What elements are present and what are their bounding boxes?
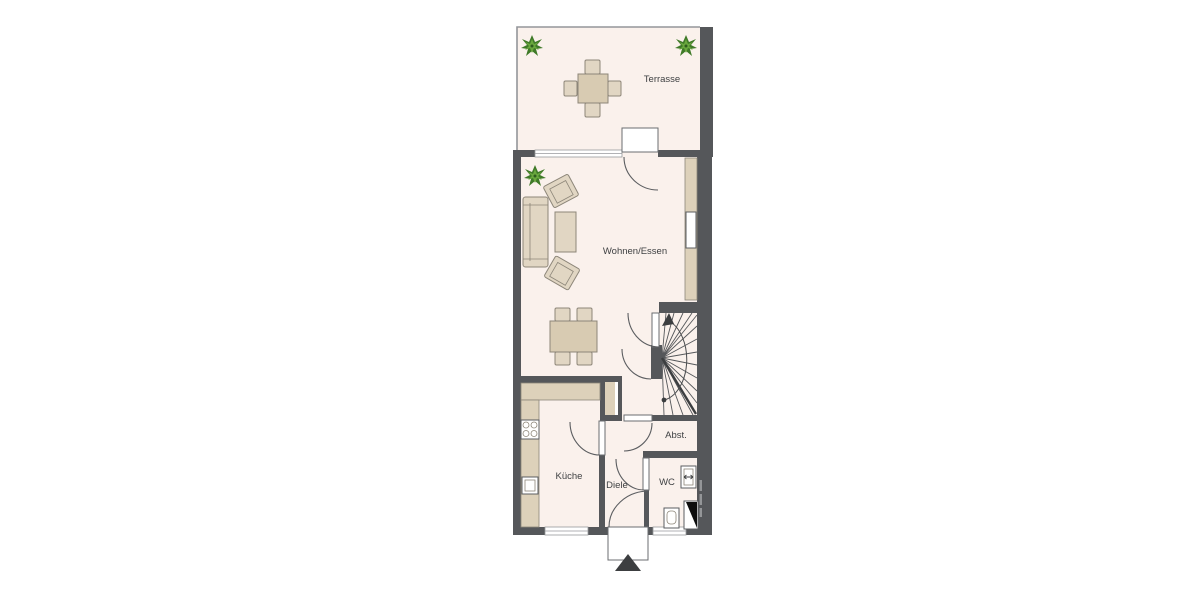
sink-icon (522, 477, 538, 494)
wall-outer-left (513, 150, 521, 535)
label-kueche: Küche (556, 471, 583, 482)
dining-chair (555, 352, 570, 365)
terrace-chair (585, 103, 600, 117)
kitchen-counter-top (521, 383, 600, 400)
shaft-fill (605, 382, 615, 415)
floor-plan-svg: Terrasse Wohnen/Essen Küche Diele WC Abs… (0, 0, 1200, 600)
storage-door-leaf (624, 415, 652, 421)
sofa (523, 197, 548, 267)
living-hall-door-leaf (652, 313, 659, 347)
dining-chair (555, 308, 570, 321)
terrace-chair (585, 60, 600, 74)
terrace-door-leaf (622, 128, 658, 152)
label-diele: Diele (606, 480, 628, 491)
wall-stair-storage (652, 415, 697, 421)
wall-hall-wc (644, 490, 649, 527)
label-wohnen-essen: Wohnen/Essen (603, 246, 667, 257)
toilet-icon (664, 508, 679, 528)
wall-terrace-right-seg (658, 150, 712, 157)
wall-kitchen-top (513, 376, 605, 383)
window-right-frame (686, 212, 696, 248)
dining-table (550, 321, 597, 352)
terrace-chair (608, 81, 621, 96)
wall-terrace-right (700, 27, 713, 157)
wall-kitchen-hall (599, 455, 605, 527)
duct-icon (684, 501, 698, 529)
washbasin-icon (681, 466, 696, 488)
label-abstellraum: Abst. (665, 430, 687, 441)
wall-terrace-left-seg (513, 150, 535, 157)
label-wc: WC (659, 477, 675, 488)
watermark (700, 480, 703, 517)
terrace-chair (564, 81, 577, 96)
wall-living-hall (659, 302, 697, 313)
kitchen-counter-left (521, 400, 539, 527)
wall-outer-right (697, 150, 712, 535)
dining-chair (577, 352, 592, 365)
terrace-table (578, 74, 608, 103)
shaft-gap (615, 382, 618, 415)
wall-storage-wc (643, 451, 697, 458)
shaft-block (600, 376, 622, 421)
kitchen-door-leaf (599, 421, 605, 455)
stair-walkline-start-dot (662, 398, 667, 403)
dining-chair (577, 308, 592, 321)
coffee-table (555, 212, 576, 252)
floor-plan-canvas: Terrasse Wohnen/Essen Küche Diele WC Abs… (0, 0, 1200, 600)
wc-door-leaf (643, 458, 649, 490)
stove-icon (521, 420, 539, 439)
label-terrasse: Terrasse (644, 74, 680, 85)
wall-stair-post (651, 345, 662, 379)
